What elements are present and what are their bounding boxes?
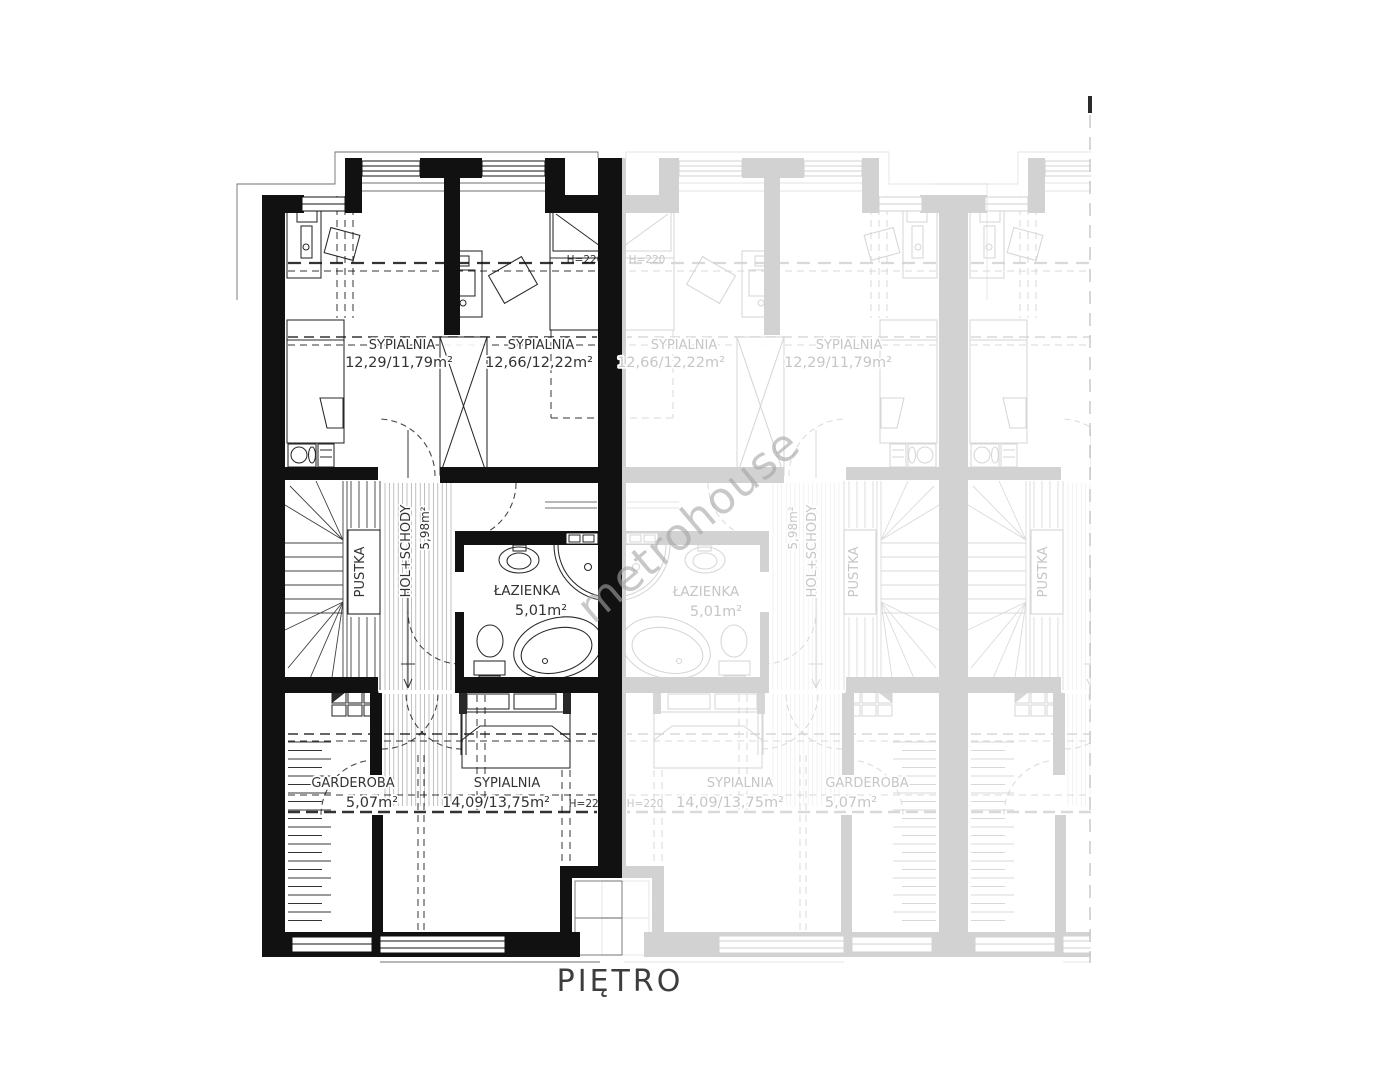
- unit-adjacent-partial: [920, 152, 1305, 962]
- room-label-sypialnia-3: SYPIALNIA: [474, 776, 541, 791]
- faded-area-label-lazienka: 5,01m²: [690, 604, 742, 620]
- faded-height-label-top: H=220: [629, 254, 666, 266]
- faded-room-label-pustka-unit3: PUSTKA: [1036, 547, 1051, 598]
- room-label-pustka: PUSTKA: [353, 547, 368, 598]
- floor-plan-canvas: H=220H=220 SYPIALNIA12,29/11,79m²SYPIALN…: [0, 0, 1397, 1080]
- room-label-lazienka: ŁAZIENKA: [493, 583, 561, 599]
- faded-room-label-sypialnia-2: SYPIALNIA: [816, 338, 883, 353]
- room-label-sypialnia-1: SYPIALNIA: [369, 338, 436, 353]
- faded-room-label-garderoba: GARDEROBA: [825, 776, 908, 791]
- faded-area-label-sypialnia-2: 12,29/11,79m²: [784, 355, 892, 371]
- faded-room-label-hol-schody: HOL+SCHODY: [805, 505, 820, 598]
- height-label-top: H=220: [567, 254, 604, 266]
- area-label-lazienka: 5,01m²: [515, 603, 567, 619]
- faded-room-label-sypialnia-3: SYPIALNIA: [707, 776, 774, 791]
- faded-area-label-sypialnia-1: 12,66/12,22m²: [617, 355, 725, 371]
- faded-room-label-lazienka: ŁAZIENKA: [672, 584, 740, 600]
- area-label-hol-schody: 5,98m²: [418, 506, 432, 549]
- area-label-garderoba: 5,07m²: [346, 795, 398, 811]
- floor-title: PIĘTRO: [557, 964, 684, 999]
- faded-area-label-sypialnia-3: 14,09/13,75m²: [676, 795, 784, 811]
- area-label-sypialnia-1: 12,29/11,79m²: [345, 355, 453, 371]
- section-cut-tick: [1088, 96, 1092, 113]
- faded-room-label-pustka: PUSTKA: [847, 547, 862, 598]
- area-label-sypialnia-3: 14,09/13,75m²: [442, 795, 550, 811]
- room-label-sypialnia-2: SYPIALNIA: [508, 338, 575, 353]
- area-label-sypialnia-2: 12,66/12,22m²: [485, 355, 593, 371]
- room-label-garderoba: GARDEROBA: [311, 776, 394, 791]
- unit-main: [237, 152, 622, 962]
- room-label-hol-schody: HOL+SCHODY: [399, 505, 414, 598]
- faded-area-label-garderoba: 5,07m²: [825, 795, 877, 811]
- faded-room-label-sypialnia-1: SYPIALNIA: [651, 338, 718, 353]
- faded-area-label-hol-schody: 5,98m²: [786, 506, 800, 549]
- faded-height-label-bottom: H=220: [627, 798, 664, 810]
